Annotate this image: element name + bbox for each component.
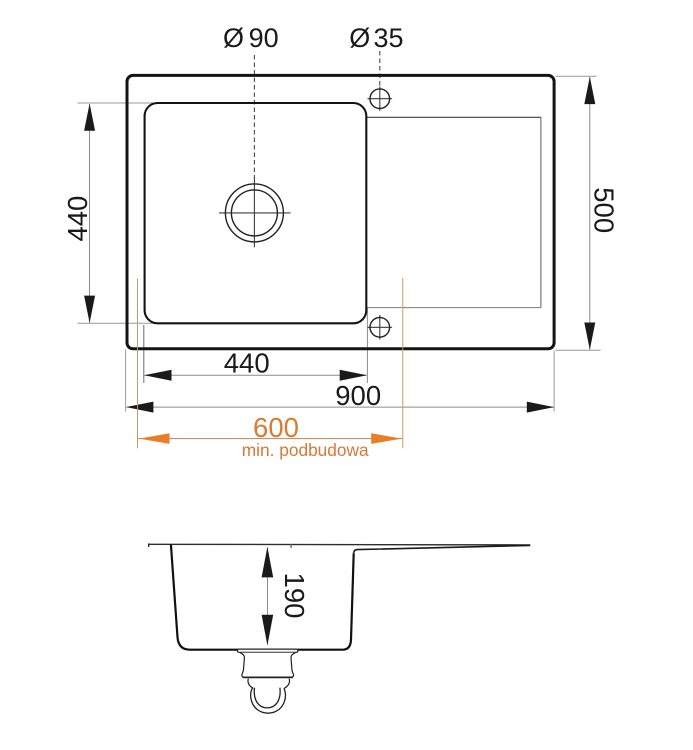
svg-text:900: 900 — [335, 380, 381, 411]
svg-text:Ø35: Ø35 — [349, 23, 403, 53]
svg-text:600: 600 — [253, 412, 299, 443]
svg-text:440: 440 — [62, 196, 93, 242]
svg-text:500: 500 — [589, 187, 620, 233]
svg-text:Ø90: Ø90 — [223, 23, 279, 53]
svg-text:440: 440 — [224, 348, 270, 379]
svg-text:min. podbudowa: min. podbudowa — [242, 440, 369, 460]
svg-text:190: 190 — [279, 573, 310, 619]
